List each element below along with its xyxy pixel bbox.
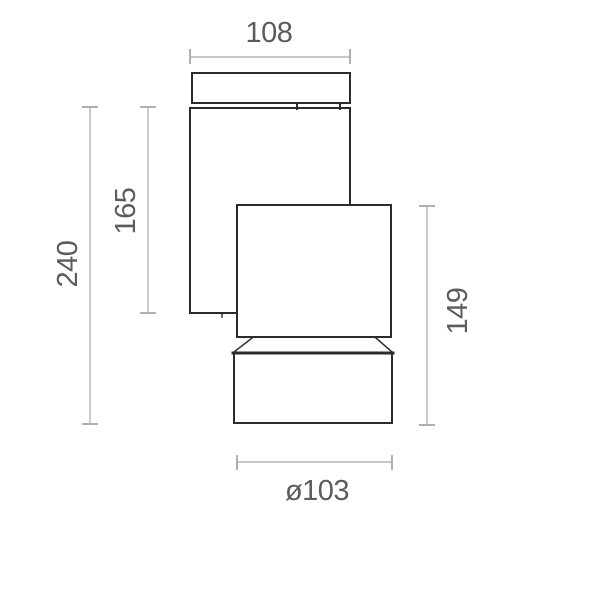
lamp-barrel — [234, 353, 392, 423]
dimension-barrel-diameter: ø103 — [237, 455, 392, 507]
dimension-label-165: 165 — [110, 188, 142, 235]
head-flare-right — [376, 338, 392, 352]
dimension-label-149: 149 — [442, 288, 474, 335]
dimension-drawing: 108 240 165 149 ø103 — [0, 0, 600, 600]
dimension-top-width: 108 — [190, 17, 350, 64]
fixture-outline — [190, 73, 393, 423]
drawing-canvas: 108 240 165 149 ø103 — [0, 0, 600, 600]
dimension-overall-height: 240 — [52, 107, 98, 424]
mounting-cap — [192, 73, 350, 103]
dimension-label-diameter: ø103 — [285, 475, 349, 507]
lamp-head-body — [237, 205, 391, 337]
dimension-label-108: 108 — [246, 17, 293, 49]
dimension-label-240: 240 — [52, 241, 84, 288]
dimension-head-height: 149 — [419, 206, 474, 425]
dimension-bracket-height: 165 — [110, 107, 156, 313]
head-flare-left — [234, 338, 252, 352]
